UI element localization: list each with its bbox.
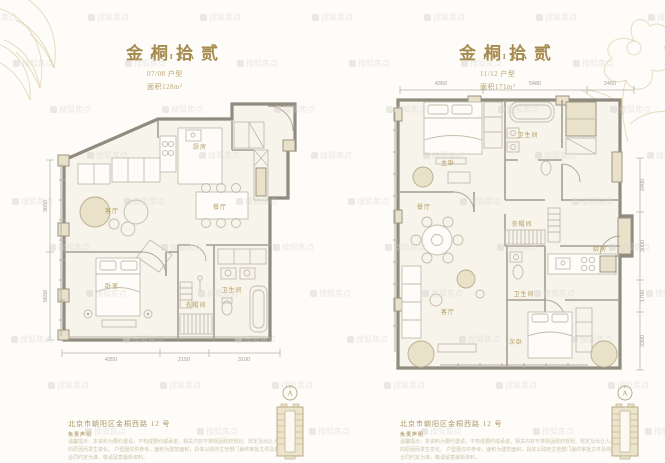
project-address: 北京市朝阳区金桐西路 12 号 <box>68 419 171 429</box>
second-bed <box>528 312 572 358</box>
room-label-dining: 餐厅 <box>417 203 431 211</box>
round-column-left <box>408 341 434 367</box>
round-column-right <box>591 341 617 367</box>
svg-text:4350: 4350 <box>105 357 117 363</box>
disclaimer-label: 免责声明 <box>400 431 632 438</box>
room-label-bedroom: 卧室 <box>105 282 119 290</box>
room-label-master: 主卧 <box>441 159 455 167</box>
left-unit-number: 07/08 户型 <box>147 68 183 81</box>
svg-text:3650: 3650 <box>43 200 49 212</box>
svg-text:2450: 2450 <box>604 81 616 87</box>
left-unit-panel: 金桐拾贰 EPIKA 07/08 户型 面积128m² <box>0 0 332 463</box>
building-key-plan: A <box>272 384 308 460</box>
disclaimer-block: 免责声明 温馨提示：本资料为要约邀请，不构成要约或承诺，相关内容不排除因政府规划… <box>400 431 632 463</box>
disclaimer-text: 温馨提示：本资料为要约邀请，不构成要约或承诺，相关内容不排除因政府规划、规定及出… <box>68 439 300 463</box>
room-label-living: 客厅 <box>441 308 455 316</box>
disclaimer-label: 免责声明 <box>68 431 300 438</box>
brochure-page: 金桐拾贰 EPIKA 07/08 户型 面积128m² <box>0 0 665 463</box>
room-label-kitchen: 厨房 <box>593 245 607 253</box>
svg-text:3000: 3000 <box>640 240 646 252</box>
svg-text:5650: 5650 <box>43 290 49 302</box>
svg-text:5480: 5480 <box>529 81 541 87</box>
right-plan-subtitle: EPIKA <box>345 52 665 61</box>
room-label-bedroom2: 次卧 <box>509 338 523 346</box>
svg-text:2150: 2150 <box>178 357 190 363</box>
master-bed <box>424 102 482 154</box>
disclaimer-block: 免责声明 温馨提示：本资料为要约邀请，不构成要约或承诺，相关内容不排除因政府规划… <box>68 431 300 463</box>
compass-letter: A <box>287 390 292 398</box>
left-unit-area: 面积128m² <box>147 81 183 94</box>
compass-letter: A <box>622 390 627 398</box>
room-label-closet: 衣帽间 <box>185 301 206 309</box>
room-label-bath-top: 卫生间 <box>517 131 538 139</box>
svg-text:2400: 2400 <box>640 179 646 191</box>
svg-text:3300: 3300 <box>640 335 646 347</box>
right-unit-panel: 金桐拾贰 EPIKA 11/12 户型 面积171m² <box>333 0 665 463</box>
left-floor-plan: 厨房 客厅 餐厅 卧室 衣帽间 卫生间 4350 2150 3100 3650 … <box>38 96 302 366</box>
room-label-bath: 卫生间 <box>221 286 242 294</box>
kitchen-counter <box>548 254 616 274</box>
svg-text:3100: 3100 <box>238 357 250 363</box>
room-label-wardrobe: 衣帽间 <box>511 220 532 228</box>
building-key-plan: A <box>607 384 643 460</box>
left-plan-meta: 07/08 户型 面积128m² <box>147 68 183 95</box>
svg-text:1700: 1700 <box>640 290 646 302</box>
room-label-dining: 餐厅 <box>213 203 227 211</box>
project-address: 北京市朝阳区金桐西路 12 号 <box>400 419 503 429</box>
disclaimer-text: 温馨提示：本资料为要约邀请，不构成要约或承诺，相关内容不排除因政府规划、规定及出… <box>400 439 632 463</box>
right-floor-plan: 主卧 卫生间 衣帽间 餐厅 客厅 次卧 厨房 卫生间 4350 5480 245… <box>385 80 650 410</box>
room-label-living: 客厅 <box>105 207 119 215</box>
left-plan-subtitle: EPIKA <box>12 52 332 61</box>
svg-text:4350: 4350 <box>435 81 447 87</box>
room-label-kitchen: 厨房 <box>193 143 207 151</box>
room-label-bath-mid: 卫生间 <box>513 290 534 298</box>
